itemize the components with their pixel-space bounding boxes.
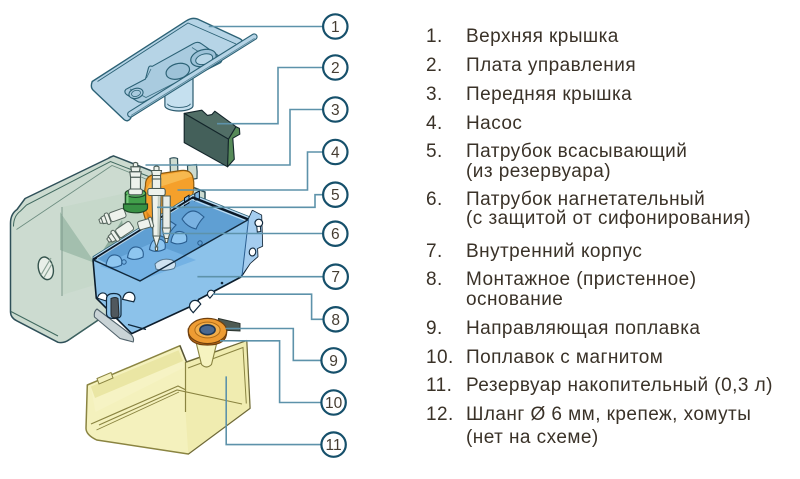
svg-text:7: 7 (331, 269, 340, 286)
svg-text:5: 5 (331, 187, 340, 204)
svg-text:1: 1 (331, 19, 340, 36)
svg-text:6: 6 (331, 226, 340, 243)
svg-text:11: 11 (326, 437, 342, 454)
svg-text:10: 10 (325, 395, 343, 412)
svg-text:8: 8 (331, 312, 340, 329)
svg-text:9: 9 (329, 353, 338, 370)
svg-text:4: 4 (331, 145, 340, 162)
svg-text:2: 2 (331, 60, 340, 77)
svg-text:3: 3 (331, 102, 340, 119)
